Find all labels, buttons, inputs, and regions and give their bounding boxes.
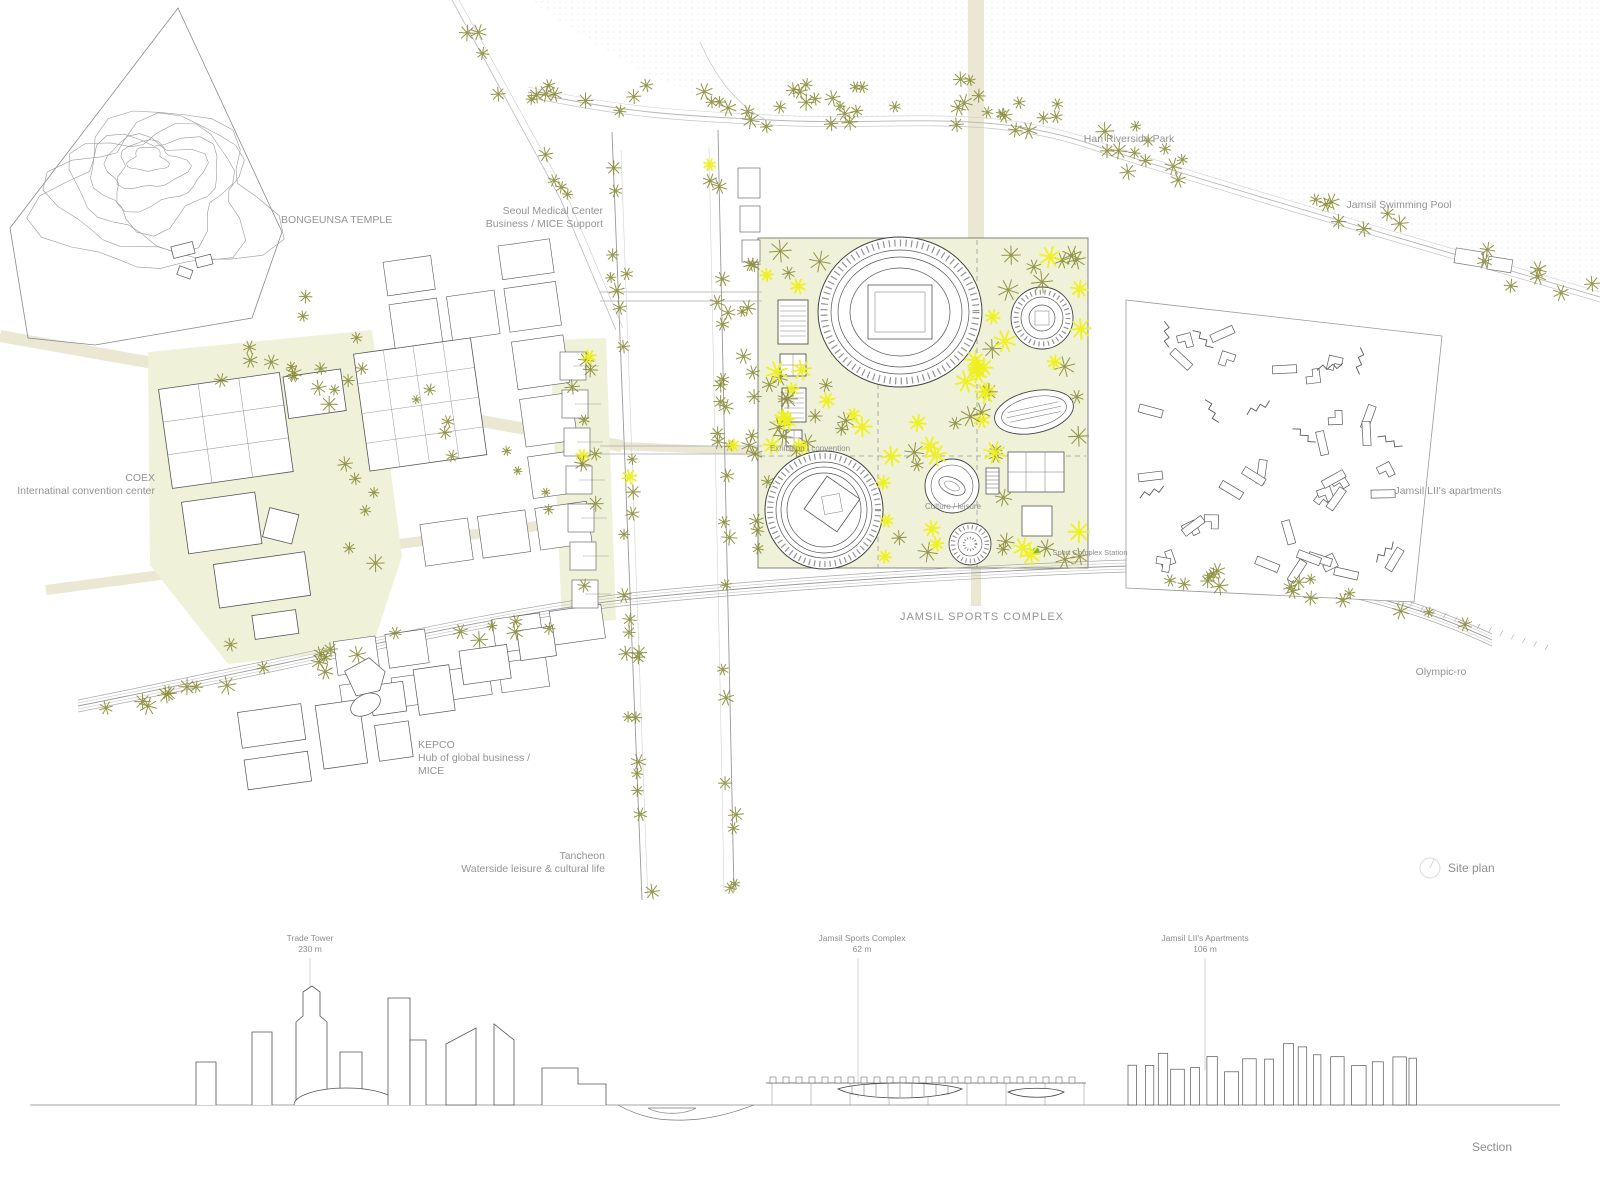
building-block (740, 206, 760, 232)
river-dip (618, 1105, 754, 1120)
contour-line (127, 147, 170, 171)
tree-icon (1071, 319, 1091, 339)
temple-contours (27, 111, 285, 268)
label-trade-tower-height: 230 m (298, 944, 322, 954)
label-tancheon-1: Tancheon (559, 850, 605, 862)
tree-icon (720, 579, 731, 590)
tree-icon (728, 823, 739, 834)
tree-icon (626, 507, 639, 520)
embankment-ticks (1398, 599, 1548, 650)
section-building (1393, 1057, 1406, 1105)
tree-icon (950, 118, 964, 132)
building-block (389, 298, 443, 348)
tree-icon (367, 555, 384, 572)
tree-icon (953, 72, 968, 87)
label-exhibition-convention: Exhibition / convention (770, 444, 850, 453)
building-block (738, 168, 760, 198)
tree-icon (719, 690, 734, 705)
coex-skyline (196, 986, 606, 1105)
deck-tooth (1017, 1077, 1023, 1083)
building-block (171, 242, 195, 259)
tree-icon (721, 469, 734, 482)
label-site-plan: Site plan (1448, 861, 1495, 875)
building-block (459, 644, 511, 684)
deck-tooth (809, 1077, 815, 1083)
building-block (477, 510, 530, 558)
service-building (986, 468, 999, 494)
tree-icon (718, 517, 729, 528)
label-section-caption: Section (1472, 1140, 1512, 1154)
tree-icon (627, 454, 637, 464)
tree-icon (609, 283, 624, 298)
section-building (1372, 1062, 1383, 1105)
tree-icon (1331, 214, 1345, 228)
deck-tooth (1030, 1077, 1036, 1083)
tree-icon (717, 664, 728, 675)
section-building (1207, 1057, 1217, 1106)
deck-tooth (1043, 1077, 1049, 1083)
tree-icon (714, 97, 725, 108)
tree-icon (746, 366, 759, 379)
tree-icon (588, 496, 603, 511)
deck-tooth (835, 1077, 841, 1083)
tree-icon (1207, 568, 1219, 580)
deck-tooth (926, 1077, 932, 1083)
section-building (494, 1024, 514, 1105)
label-tancheon-2: Waterside leisure & cultural life (461, 863, 605, 875)
section-building (196, 1062, 216, 1105)
deck-tooth (1004, 1077, 1010, 1083)
tree-icon (1554, 286, 1569, 301)
label-culture-leisure: Culture / leisure (925, 502, 982, 511)
tree-icon (539, 147, 553, 161)
tree-icon (1139, 154, 1152, 167)
tree-icon (703, 174, 717, 188)
deck-tooth (848, 1077, 854, 1083)
drawing-svg: BONGEUNSA TEMPLE Seoul Medical Center Bu… (0, 0, 1600, 1190)
label-sports-complex-height: 62 m (853, 944, 872, 954)
label-bongeunsa-temple: BONGEUNSA TEMPLE (281, 214, 392, 226)
deck-tooth (900, 1077, 906, 1083)
label-trade-tower: Trade Tower (287, 933, 334, 943)
label-apartments: Jamsil LII's apartments (1394, 485, 1501, 497)
building-block (237, 704, 305, 749)
north-road (452, 0, 616, 330)
large-block (354, 338, 487, 471)
tree-icon (711, 427, 725, 440)
section-drawing: Trade Tower 230 m Jamsil Sports Complex … (30, 933, 1560, 1154)
contour-line (117, 140, 191, 189)
tree-icon (544, 504, 554, 514)
tree-icon (514, 467, 522, 475)
tree-icon (607, 161, 622, 176)
apartments-district (1126, 300, 1442, 602)
tree-icon (1393, 603, 1409, 619)
section-building (1191, 1068, 1200, 1105)
tree-icon (645, 884, 660, 899)
section-building (1409, 1058, 1416, 1105)
deck-tooth (978, 1077, 984, 1083)
tree-icon (1068, 521, 1089, 542)
deck-tooth (874, 1077, 880, 1083)
site-plan-page: BONGEUNSA TEMPLE Seoul Medical Center Bu… (0, 0, 1600, 1190)
tree-icon (1504, 279, 1517, 292)
tree-icon (299, 290, 312, 303)
tree-icon (983, 339, 1002, 358)
arena-bowl-section (1008, 1088, 1064, 1097)
tree-icon (321, 396, 337, 412)
tancheon-river (612, 130, 734, 900)
deck-tooth (822, 1077, 828, 1083)
sports-complex-section (766, 1077, 1086, 1105)
river-hull (648, 1108, 696, 1113)
tree-icon (722, 306, 735, 319)
embankment-tick (1398, 599, 1548, 650)
tree-icon (1037, 112, 1049, 124)
contour-line (104, 134, 208, 213)
deck-tooth (991, 1077, 997, 1083)
label-sport-complex-station: Sport Complex Station (1052, 548, 1127, 557)
tree-icon (257, 661, 270, 674)
tree-icon (477, 47, 489, 59)
tree-icon (1069, 426, 1089, 446)
tree-icon (632, 785, 644, 797)
coex-hall (159, 372, 294, 488)
building-block (383, 256, 435, 296)
tree-icon (640, 79, 653, 92)
tree-icon (471, 25, 486, 40)
plaza-block (1022, 506, 1052, 536)
tree-icon (972, 89, 985, 102)
section-building (410, 1040, 426, 1105)
tree-icon (747, 390, 761, 404)
tree-icon (1120, 164, 1136, 180)
tree-icon (728, 807, 743, 822)
small-arena (949, 523, 991, 565)
tree-icon (623, 613, 636, 626)
tree-icon (1129, 147, 1140, 158)
tree-icon (369, 487, 379, 497)
tree-icon (543, 623, 555, 635)
section-building (252, 1032, 272, 1105)
apartment-block (1272, 365, 1296, 374)
section-building (446, 1028, 476, 1105)
deck-tooth (965, 1077, 971, 1083)
label-kepco-2: Hub of global business / (418, 752, 530, 764)
building-block (549, 604, 605, 645)
apartments-section (1128, 1044, 1416, 1105)
building-block (504, 281, 562, 332)
tree-icon (627, 90, 641, 104)
tree-icon (626, 485, 640, 499)
deck-tooth (796, 1077, 802, 1083)
tree-icon (562, 189, 572, 199)
apartment-block (1362, 421, 1371, 445)
label-han-riverside-park: Han Riverside Park (1084, 133, 1175, 145)
tree-icon (342, 375, 354, 387)
section-building (1243, 1059, 1257, 1105)
bongeunsa-temple (10, 8, 284, 345)
tree-icon (714, 378, 728, 392)
baseball-stadium (765, 451, 883, 569)
tree-icon (719, 777, 732, 790)
tree-icon (761, 269, 773, 281)
section-building (1171, 1069, 1185, 1105)
tree-icon (1002, 246, 1021, 264)
tree-icon (740, 300, 755, 315)
label-seoul-medical-1: Seoul Medical Center (503, 205, 604, 217)
temple-boundary (10, 8, 282, 345)
section-building (1128, 1065, 1137, 1105)
tree-icon (459, 25, 475, 41)
tree-icon (808, 409, 822, 423)
water-edge-line (621, 150, 648, 898)
coex-hall (181, 492, 262, 554)
tree-icon (722, 530, 737, 545)
temple-buildings (171, 242, 213, 280)
tree-icon (578, 93, 593, 108)
tree-icon (623, 626, 635, 638)
deck-tooth (913, 1077, 919, 1083)
label-sports-complex-section: Jamsil Sports Complex (819, 933, 907, 943)
tree-icon (777, 410, 791, 424)
tree-icon (760, 121, 772, 133)
tree-icon (471, 632, 488, 649)
label-apartments-height: 106 m (1193, 944, 1217, 954)
deck-tooth (952, 1077, 958, 1083)
olympic-stadium (818, 237, 982, 387)
building-block (244, 751, 312, 790)
tree-icon (621, 268, 632, 279)
label-swimming-pool: Jamsil Swimming Pool (1346, 199, 1451, 211)
tree-icon (610, 185, 622, 197)
tree-icon (491, 87, 505, 101)
tree-icon (623, 470, 637, 484)
section-building (542, 1068, 606, 1105)
tree-icon (876, 476, 890, 490)
section-building (1298, 1047, 1307, 1105)
label-coex-2: Internatinal convention center (17, 485, 155, 497)
section-building (1158, 1053, 1167, 1105)
trade-tower-section (296, 986, 327, 1105)
north-arrow-icon (1420, 858, 1440, 878)
section-building (1225, 1072, 1239, 1105)
tree-icon (606, 272, 616, 282)
tree-icon (716, 272, 730, 286)
tree-icon (853, 417, 872, 437)
label-kepco-1: KEPCO (418, 739, 455, 751)
deck-tooth (861, 1077, 867, 1083)
river-bank-line (718, 130, 734, 892)
tree-icon (613, 301, 626, 314)
tree-icon (619, 529, 630, 540)
building-block (177, 266, 193, 279)
label-kepco-3: MICE (418, 765, 444, 777)
section-building (1313, 1055, 1321, 1105)
arena (1011, 287, 1073, 349)
tree-icon (631, 651, 644, 664)
building-block (498, 239, 554, 280)
section-building (1145, 1065, 1153, 1105)
building-block (446, 290, 500, 340)
apartment-block (1371, 490, 1395, 498)
building-block (413, 665, 455, 716)
label-olympic-ro: Olympic-ro (1416, 666, 1467, 678)
tancheon-section (618, 1105, 754, 1120)
building-block (420, 518, 473, 566)
section-building (1331, 1057, 1344, 1105)
label-coex-1: COEX (125, 472, 155, 484)
tree-icon (736, 349, 751, 364)
building-block (517, 626, 557, 661)
tree-icon (619, 646, 633, 661)
bridge (600, 292, 762, 301)
tree-icon (318, 664, 333, 679)
label-apartments-section: Jamsil LII's Apartments (1161, 933, 1248, 943)
deck-tooth (887, 1077, 893, 1083)
building-block (375, 721, 414, 761)
section-building (1265, 1059, 1274, 1105)
section-building (1352, 1066, 1367, 1105)
tree-icon (778, 389, 797, 408)
water-edge-line (709, 148, 724, 890)
tree-icon (727, 439, 740, 451)
tree-icon (623, 712, 634, 723)
tennis-courts (1008, 452, 1064, 492)
tree-icon (969, 360, 986, 377)
deck-tooth (939, 1077, 945, 1083)
building-block (195, 254, 213, 268)
tree-icon (614, 105, 626, 117)
tree-icon (714, 395, 727, 408)
building-block (742, 240, 760, 262)
deck-tooth (1069, 1077, 1075, 1083)
label-jamsil-sports-complex: JAMSIL SPORTS COMPLEX (900, 611, 1064, 623)
tree-icon (746, 430, 758, 442)
deck-tooth (770, 1077, 776, 1083)
tree-icon (879, 551, 891, 563)
deck-tooth (1056, 1077, 1062, 1083)
deck-tooth (783, 1077, 789, 1083)
tree-icon (1292, 575, 1306, 589)
tree-icon (344, 542, 355, 553)
tree-icon (298, 311, 309, 322)
section-building (1283, 1044, 1293, 1105)
tree-icon (607, 249, 619, 261)
tree-icon (631, 755, 645, 769)
section-building (388, 998, 410, 1105)
label-seoul-medical-2: Business / MICE Support (486, 218, 603, 230)
tree-icon (502, 446, 511, 455)
tree-icon (218, 677, 236, 695)
